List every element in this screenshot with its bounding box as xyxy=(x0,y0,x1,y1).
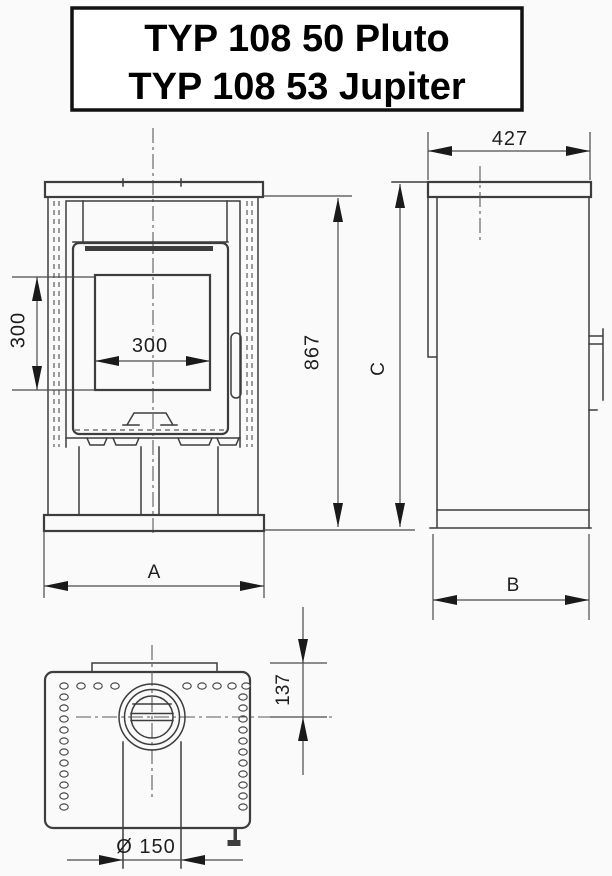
vent-hole xyxy=(183,683,191,689)
vent-hole xyxy=(60,804,68,810)
dim-depth-427: 427 xyxy=(428,128,590,180)
vent-hole xyxy=(239,760,247,766)
vent-hole xyxy=(60,705,68,711)
vent-hole xyxy=(239,771,247,777)
dim-flue-diameter-150: Ø 150 xyxy=(67,836,243,865)
vent-hole xyxy=(77,683,85,689)
front-base xyxy=(44,515,264,531)
dim-height-867: 867 xyxy=(263,196,415,530)
dim-flue-offset-137: 137 xyxy=(270,607,327,775)
dim-width-A: A xyxy=(44,531,264,598)
vent-hole xyxy=(213,683,221,689)
dim-height-C: C xyxy=(368,184,405,527)
side-top-plate xyxy=(428,182,591,197)
vent-hole xyxy=(239,804,247,810)
vent-hole xyxy=(239,694,247,700)
dim-text-depth-b: B xyxy=(507,575,520,596)
foot-stem xyxy=(234,828,238,841)
technical-drawing-page: TYP 108 50 Pluto TYP 108 53 Jupiter xyxy=(0,0,612,876)
vent-hole xyxy=(239,738,247,744)
dim-text-total-height: 867 xyxy=(301,334,323,370)
vent-slots xyxy=(87,438,239,445)
vent-hole xyxy=(242,683,250,689)
vent-hole xyxy=(60,716,68,722)
door-pull-handle xyxy=(123,413,177,425)
title-line-2: TYP 108 53 Jupiter xyxy=(128,66,465,108)
vent-hole xyxy=(239,782,247,788)
dim-text-flue-offset: 137 xyxy=(273,674,294,706)
vent-hole xyxy=(60,738,68,744)
front-top-plate xyxy=(45,182,263,197)
vent-hole xyxy=(239,749,247,755)
side-base xyxy=(430,510,591,528)
foot-base xyxy=(228,840,241,846)
vent-hole xyxy=(60,771,68,777)
stove-drawing-svg: TYP 108 50 Pluto TYP 108 53 Jupiter xyxy=(0,0,612,876)
vent-hole xyxy=(239,727,247,733)
vent-hole xyxy=(60,683,68,689)
side-back-panels xyxy=(428,197,437,510)
door-top-bar xyxy=(85,246,213,251)
handle-mounts xyxy=(589,336,602,344)
dim-window-height-300: 300 xyxy=(7,277,95,390)
vent-hole xyxy=(60,793,68,799)
dim-text-width-a: A xyxy=(148,562,161,583)
vent-hole xyxy=(60,694,68,700)
side-view xyxy=(392,166,603,528)
top-back-edge xyxy=(92,663,217,672)
dim-text-depth: 427 xyxy=(492,128,528,150)
vent-hole xyxy=(239,705,247,711)
vent-holes xyxy=(60,683,250,810)
vent-hole xyxy=(239,793,247,799)
title-line-1: TYP 108 50 Pluto xyxy=(144,18,450,60)
firebox-top-frame xyxy=(73,201,228,242)
vent-hole xyxy=(60,760,68,766)
vent-hole xyxy=(111,683,119,689)
dim-text-height-c: C xyxy=(368,362,389,376)
dim-depth-B: B xyxy=(433,534,589,620)
vent-hole xyxy=(94,683,102,689)
vent-hole xyxy=(198,683,206,689)
dim-text-window-height: 300 xyxy=(7,312,29,348)
front-legs xyxy=(79,447,218,515)
vent-hole xyxy=(60,782,68,788)
vent-hole xyxy=(60,727,68,733)
dim-window-width-300: 300 xyxy=(95,335,210,366)
title-box: TYP 108 50 Pluto TYP 108 53 Jupiter xyxy=(72,8,522,110)
front-view xyxy=(44,128,264,535)
vent-hole xyxy=(228,683,236,689)
vent-hole xyxy=(60,749,68,755)
dim-text-flue-diameter: Ø 150 xyxy=(116,836,175,858)
dim-text-window-width: 300 xyxy=(132,335,168,357)
